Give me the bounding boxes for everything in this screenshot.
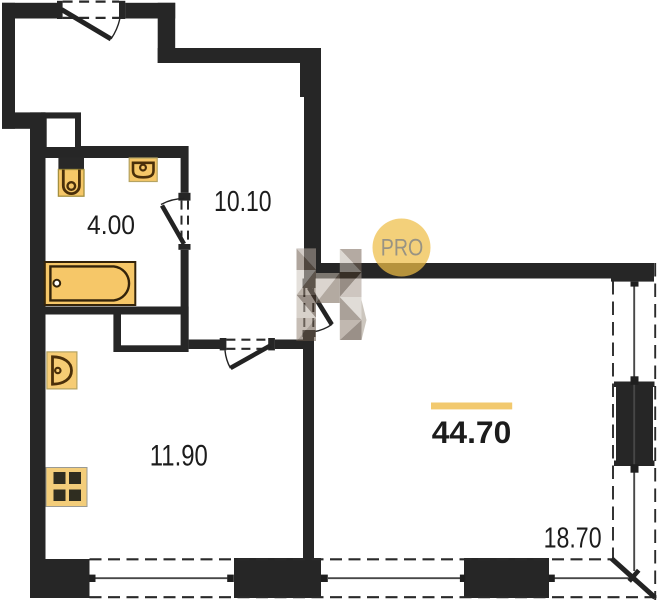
svg-text:11.90: 11.90 xyxy=(150,439,208,472)
svg-text:10.10: 10.10 xyxy=(214,186,272,218)
svg-text:18.70: 18.70 xyxy=(544,523,602,555)
svg-text:PRO: PRO xyxy=(381,235,424,262)
svg-text:44.70: 44.70 xyxy=(432,414,512,450)
svg-text:4.00: 4.00 xyxy=(87,210,135,240)
